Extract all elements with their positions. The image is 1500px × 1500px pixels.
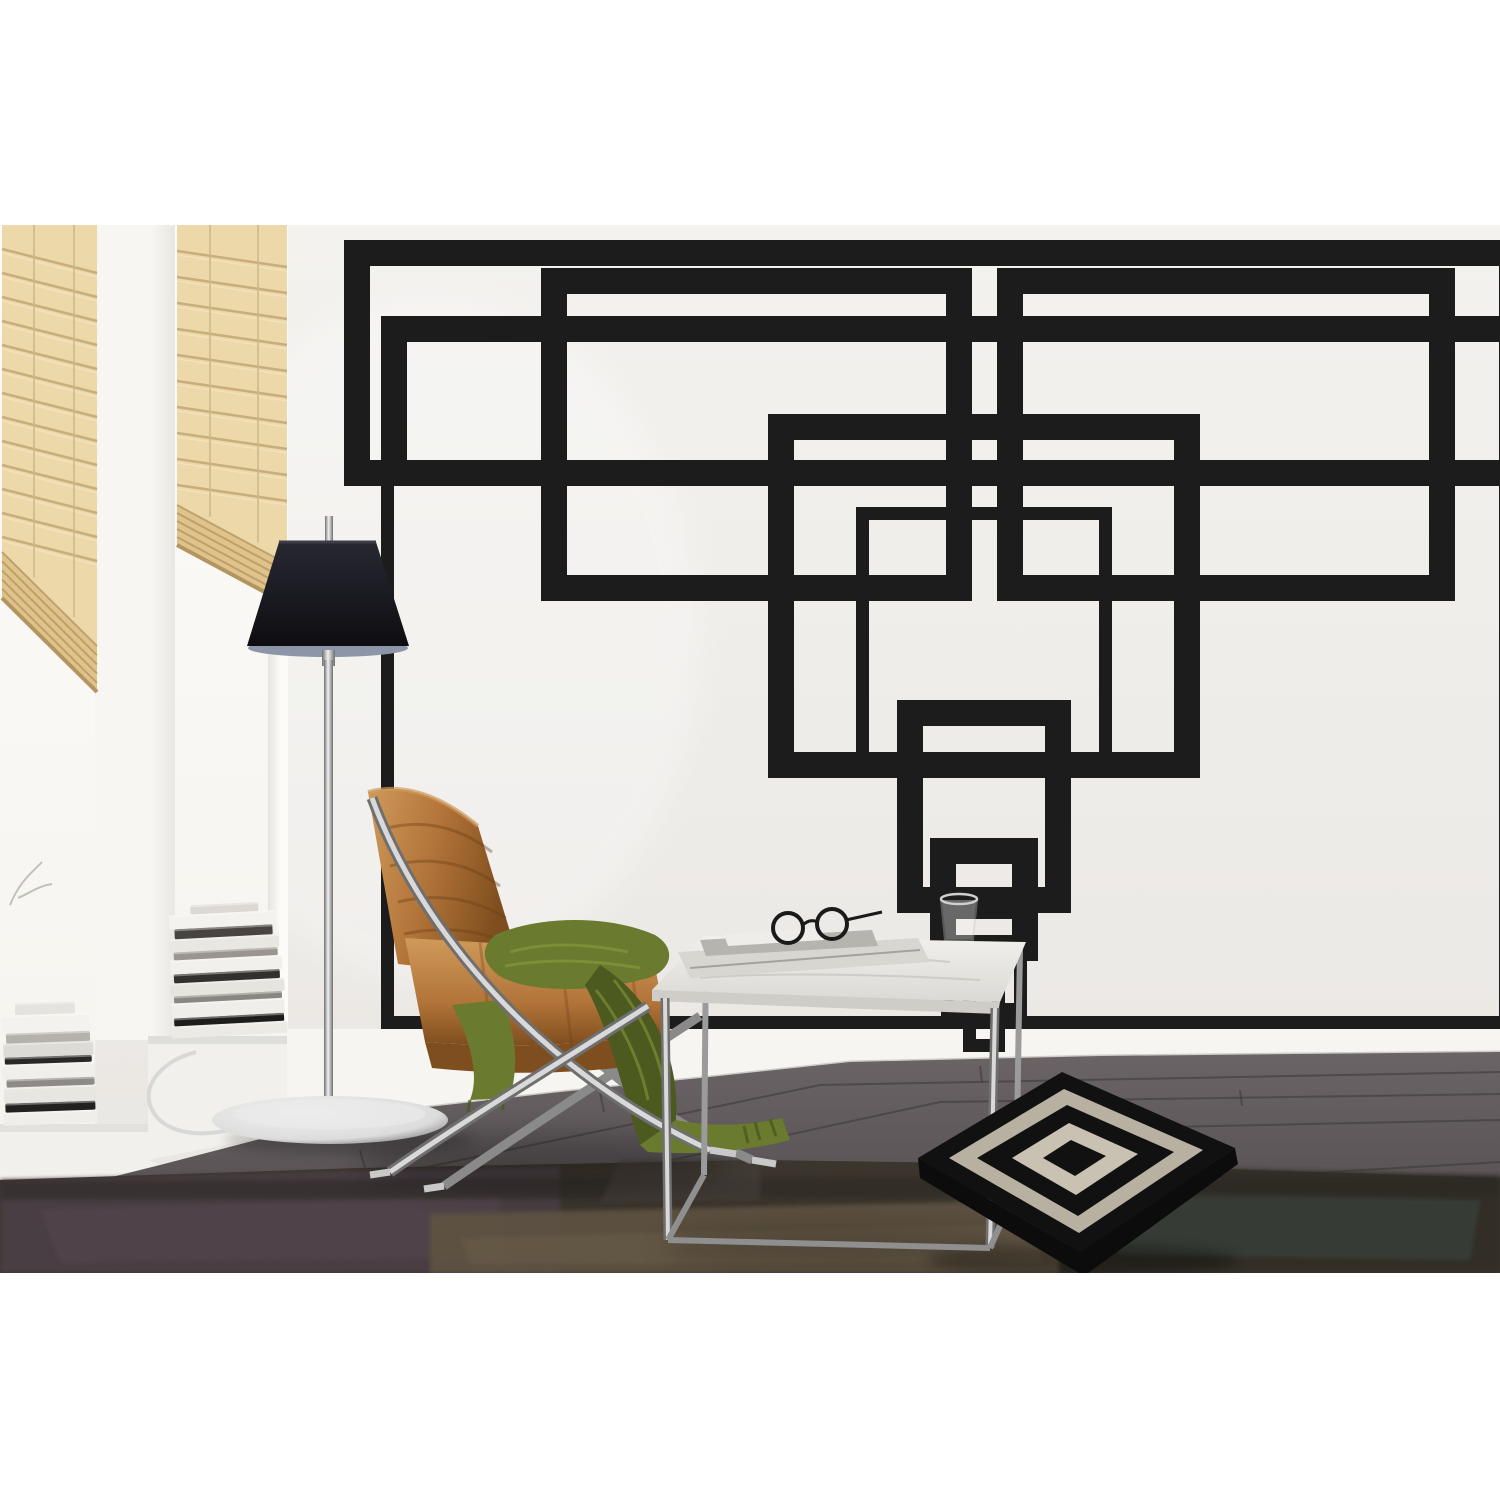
window-pier [95, 225, 175, 1040]
glass-tumbler [941, 894, 977, 940]
blind [177, 225, 287, 604]
sill-nook-edge [148, 1036, 290, 1044]
book-stack [0, 1001, 98, 1126]
margin-bottom [0, 1273, 1500, 1500]
lamp-stem [324, 660, 333, 1108]
living-room-photo [0, 0, 1500, 1500]
book-stack [165, 901, 288, 1039]
throw-on-seat [485, 920, 669, 989]
lamp-base-highlight [234, 1099, 426, 1129]
sill-left-edge [0, 1124, 148, 1132]
tumbler-body [941, 900, 977, 940]
margin-top [0, 0, 1500, 225]
